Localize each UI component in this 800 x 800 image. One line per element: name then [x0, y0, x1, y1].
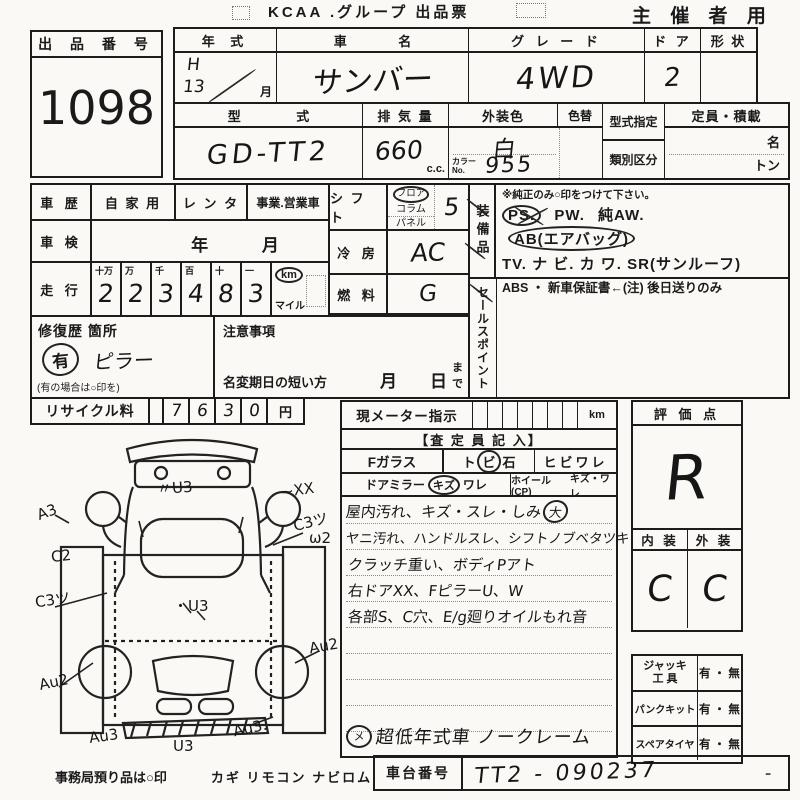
exterior-label: 外 装 — [688, 530, 741, 549]
comment-line: ヤニ汚れ、ハンドルスレ、シフトノブベタツキ — [346, 527, 630, 548]
mileage-digit-cell: 十8 — [212, 263, 242, 315]
meter-digit-cells: km — [472, 402, 616, 428]
grade-value: 4WD — [514, 59, 599, 97]
fuel-value: G — [418, 281, 439, 308]
history-rental: レ ン タ — [176, 185, 248, 219]
displacement-label: 排 気 量 — [363, 104, 448, 128]
recycle-digit: 6 — [190, 399, 216, 423]
mile-checkbox — [306, 275, 326, 307]
sheet-title: KCAA .グループ 出品票 — [268, 1, 469, 22]
history-mileage-block: 車 歴 自 家 用 レ ン タ 事業.営業車 車 検 年 月 走 行 十万2 万… — [30, 183, 330, 317]
wheel-row: ホイール(CP)キズ・ワレ — [511, 474, 616, 495]
office-deposit-note: 事務局預り品は○印 — [55, 767, 167, 786]
aircon-label: 冷 房 — [330, 231, 388, 273]
evaluation-score: R — [662, 440, 713, 514]
exterior-score-cell: C — [688, 551, 741, 628]
repair-mark-circled: 有 — [40, 341, 80, 378]
deadline-month-label: 月 — [380, 367, 397, 392]
door-label: ド ア — [645, 29, 700, 53]
car-name-value: サンバー — [310, 54, 435, 102]
interior-score: C — [645, 569, 675, 611]
auction-sheet: KCAA .グループ 出品票 主 催 者 用 出 品 番 号 1098 年 式 … — [0, 0, 800, 800]
damage-code: ~XX — [280, 479, 315, 501]
equipment-line2: TV. ナ ビ. カ ワ. SR(サンルーフ) — [502, 253, 782, 274]
jack-tools-label: ジャッキ工 具 — [633, 656, 698, 690]
year-label: 年 式 — [175, 29, 276, 53]
interior-score-cell: C — [633, 551, 688, 628]
damage-code: C2 — [50, 546, 72, 566]
history-label: 車 歴 — [32, 185, 92, 219]
assessor-box: 現メーター指示 km 【査 定 員 記 入】 Fガラス トビ石 ヒビワレ ドアミ… — [340, 400, 618, 758]
model-value: GD-TT2 — [205, 135, 331, 170]
vehicle-row1: 年 式 H 13 月 車 名 サンバー グ レ ー ド 4WD ド ア 2 形 … — [173, 27, 758, 104]
kizu-circled: キズ — [428, 475, 460, 495]
evaluation-label: 評 価 点 — [633, 402, 741, 426]
caution-label: 注意事項 — [223, 321, 275, 340]
chassis-number-label: 車台番号 — [375, 757, 463, 789]
year-number: 13 — [182, 77, 206, 97]
repair-note: (有の場合は○印を) — [37, 379, 120, 394]
damage-code: A3 — [35, 500, 60, 524]
door-value: 2 — [663, 63, 683, 94]
shift-options: フロア コラム パネル — [388, 185, 435, 229]
stamp-box-right — [516, 3, 546, 18]
damage-code: Au3. — [232, 716, 269, 741]
mileage-km-unit: km — [275, 267, 303, 283]
mileage-digit-cell: 万2 — [122, 263, 152, 315]
assessor-header: 【査 定 員 記 入】 — [342, 430, 616, 450]
tools-box: ジャッキ工 具 有 ・ 無 パンクキット 有 ・ 無 スペアタイヤ 有 ・ 無 — [631, 654, 743, 764]
rename-deadline-label: 名変期日の短い方 — [223, 372, 327, 391]
front-glass-options: トビ石 — [444, 450, 535, 472]
chassis-number-suffix: - — [764, 763, 773, 784]
chassis-number-value: TT2 - 090237 — [473, 757, 659, 788]
fuel-label: 燃 料 — [330, 275, 388, 313]
shift-floor-circled: フロア — [393, 186, 430, 203]
vehicle-row2: 型 式 GD-TT2 排 気 量 660 c.c. 外装色 色替 白 カラーNo… — [173, 102, 790, 180]
recycle-label: リサイクル料 — [32, 399, 150, 423]
recycle-unit: 円 — [268, 399, 303, 423]
auction-number-label: 出 品 番 号 — [32, 32, 161, 58]
audience-label: 主 催 者 用 — [632, 1, 773, 28]
color-no-label: カラーNo. — [452, 158, 476, 176]
displacement-value: 660 — [373, 135, 424, 166]
footer-note-row: 事務局預り品は○印 カギ リモコン ナビロム — [55, 767, 372, 786]
deadline-made-label: まで — [452, 359, 468, 391]
inspection-year-label: 年 — [191, 231, 208, 256]
interior-label: 内 装 — [633, 530, 688, 549]
deposit-items: カギ リモコン ナビロム — [211, 767, 372, 786]
inspection-label: 車 検 — [32, 221, 92, 261]
grade-label: グ レ ー ド — [469, 29, 644, 53]
sales-point-content — [497, 279, 788, 397]
tobi-circled: ビ — [477, 450, 500, 473]
color-change-label: 色替 — [557, 104, 602, 126]
year-era: H — [186, 55, 201, 75]
equipment-note: ※純正のみ○印をつけて下さい。 — [502, 187, 782, 202]
recycle-digit: 3 — [216, 399, 242, 423]
damage-code: C3ツ — [34, 587, 72, 613]
damage-codes-layer: 〃U3~XXA3C3ツω2C2C3ツ・U3Au2Au2Au3U3Au3. — [35, 425, 340, 760]
recycle-digit: 0 — [242, 399, 268, 423]
auction-number-value: 1098 — [32, 58, 161, 158]
type-designation-label: 型式指定 — [603, 104, 664, 141]
pen-stroke — [208, 69, 257, 104]
equipment-label: 装備品 — [470, 185, 496, 277]
capacity-persons-label: 名 — [767, 132, 780, 151]
deadline-day-label: 日 — [430, 367, 447, 392]
shape-label: 形 状 — [701, 29, 756, 53]
comment-line: クラッチ重い、ボディPアト — [348, 554, 536, 575]
damage-code: U3 — [173, 737, 194, 755]
car-name-label: 車 名 — [277, 29, 468, 53]
dai-circled: 大 — [542, 500, 569, 523]
damage-code: ω2 — [309, 529, 331, 547]
car-diagram: 〃U3~XXA3C3ツω2C2C3ツ・U3Au2Au2Au3U3Au3. — [35, 425, 340, 760]
inspection-month-label: 月 — [262, 231, 279, 256]
final-note-text: 超低年式車 ノークレーム — [375, 723, 593, 749]
chassis-number-row: 車台番号 TT2 - 090237 - — [373, 755, 790, 791]
capacity-ton-label: トン — [754, 155, 780, 174]
repair-label: 修復歴 箇所 — [38, 321, 118, 341]
mileage-digit-cell: 十万2 — [92, 263, 122, 315]
exterior-color-label: 外装色 — [449, 104, 557, 126]
stamp-box-left — [232, 6, 250, 20]
recycle-digit: 7 — [164, 399, 190, 423]
recycle-fee-row: リサイクル料 7 6 3 0 円 — [30, 397, 305, 425]
comment-line: 右ドアXX、FピラーU、W — [348, 580, 523, 601]
repair-location: ピラー — [92, 344, 155, 375]
auction-number-box: 出 品 番 号 1098 — [30, 30, 163, 178]
shift-label: シ フ ト — [330, 185, 388, 229]
scribble-circle-icon: メ — [346, 725, 372, 748]
damage-code: ・U3 — [173, 595, 209, 616]
airbag-circled: AB(エアバッグ) — [508, 226, 635, 251]
mileage-label: 走 行 — [32, 263, 92, 315]
comment-line: 屋内汚れ、キズ・スレ・しみ大 — [346, 500, 568, 523]
repair-caution-block: 修復歴 箇所 有 ピラー (有の場合は○印を) 注意事項 名変期日の短い方 月 … — [30, 315, 470, 399]
evaluation-score-cell: R — [633, 426, 741, 530]
door-mirror-row: ドアミラーキズワレ — [342, 474, 511, 495]
meter-unit: km — [577, 402, 616, 428]
puncture-kit-label: パンクキット — [633, 692, 698, 725]
aircon-value: AC — [409, 237, 446, 267]
exterior-score: C — [700, 569, 730, 611]
puncture-kit-value: 有 ・ 無 — [698, 692, 741, 725]
model-label: 型 式 — [175, 104, 362, 128]
sales-point-label: セールスポイント — [470, 279, 497, 397]
mileage-digit-cell: 一3 — [242, 263, 272, 315]
shift-value: 5 — [442, 193, 460, 222]
final-note: メ 超低年式車 ノークレーム — [346, 723, 591, 749]
damage-code: Au2 — [37, 670, 69, 694]
history-commercial: 事業.営業車 — [248, 185, 328, 219]
shift-block: シ フ ト フロア コラム パネル 5 冷 房 AC 燃 料 G — [328, 183, 470, 315]
damage-code: 〃U3 — [156, 476, 193, 499]
mileage-mile-unit: マイル — [275, 297, 305, 312]
comments-area: 屋内汚れ、キズ・スレ・しみ大 ヤニ汚れ、ハンドルスレ、シフトノブベタツキ クラッ… — [342, 497, 616, 755]
evaluation-box: 評 価 点 R 内 装 外 装 C C — [631, 400, 743, 632]
mileage-digit-cell: 千3 — [152, 263, 182, 315]
displacement-unit: c.c. — [427, 163, 445, 175]
damage-code: Au2 — [308, 635, 340, 658]
sales-point-block: セールスポイント — [468, 277, 790, 399]
equipment-block: 装備品 ※純正のみ○印をつけて下さい。 PS. PW. 純AW. AB(エアバッ… — [468, 183, 790, 279]
meter-label: 現メーター指示 — [342, 402, 472, 428]
jack-tools-value: 有 ・ 無 — [698, 656, 741, 690]
damage-code: Au3 — [88, 725, 120, 747]
history-private: 自 家 用 — [92, 185, 176, 219]
color-no-value: 955 — [484, 152, 535, 179]
comment-line: 各部S、C穴、E/g廻りオイルもれ音 — [348, 606, 587, 627]
capacity-label: 定員・積載 — [665, 104, 788, 128]
year-month-label: 月 — [260, 83, 272, 100]
class-category-label: 類別区分 — [603, 141, 664, 177]
mileage-digit-cell: 百4 — [182, 263, 212, 315]
front-glass-label: Fガラス — [342, 450, 444, 472]
